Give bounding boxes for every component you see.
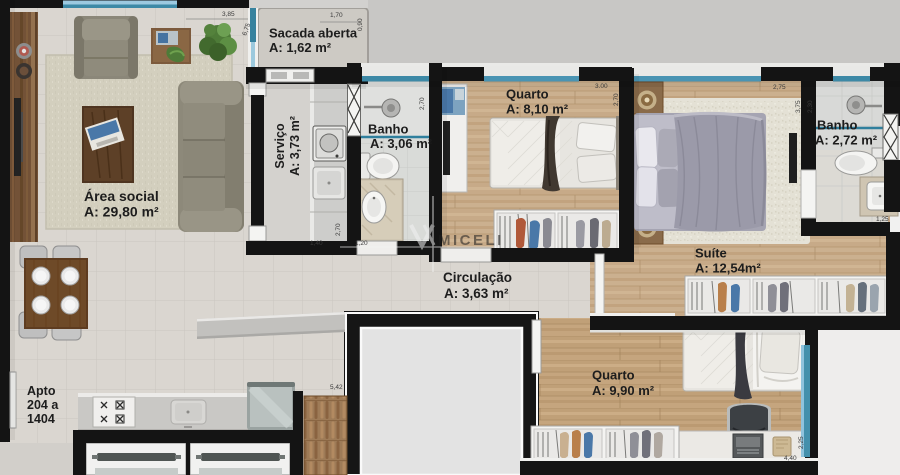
svg-text:A: 2,72 m²: A: 2,72 m² [815, 133, 878, 148]
svg-text:A: 12,54m²: A: 12,54m² [695, 261, 761, 276]
svg-text:A: 3,63 m²: A: 3,63 m² [444, 286, 509, 301]
svg-text:1,70: 1,70 [330, 12, 343, 19]
svg-text:Quarto: Quarto [506, 87, 549, 102]
svg-text:1,25: 1,25 [876, 216, 889, 223]
svg-text:3.00: 3.00 [595, 83, 608, 90]
svg-text:2,25: 2,25 [798, 436, 805, 449]
svg-text:Serviço: Serviço [273, 123, 287, 169]
svg-text:A: 1,62 m²: A: 1,62 m² [269, 40, 332, 55]
svg-text:1,20: 1,20 [355, 240, 368, 247]
svg-text:2,70: 2,70 [613, 93, 620, 106]
svg-text:Banho: Banho [817, 118, 858, 133]
svg-text:2,30: 2,30 [807, 100, 814, 113]
svg-text:2,70: 2,70 [419, 97, 426, 110]
svg-text:0,90: 0,90 [357, 18, 364, 31]
svg-text:A: 8,10 m²: A: 8,10 m² [506, 102, 569, 117]
svg-text:1,40: 1,40 [310, 240, 323, 247]
svg-text:MICELI: MICELI [438, 232, 504, 249]
svg-text:Suíte: Suíte [695, 246, 727, 261]
svg-text:2,75: 2,75 [773, 84, 786, 91]
svg-text:A: 9,90 m²: A: 9,90 m² [592, 383, 655, 398]
svg-text:Sacada aberta: Sacada aberta [269, 26, 358, 41]
svg-text:204 a: 204 a [27, 398, 59, 412]
svg-text:3,85: 3,85 [222, 11, 235, 18]
svg-text:3,75: 3,75 [795, 100, 802, 113]
svg-text:2,70: 2,70 [335, 223, 342, 236]
svg-text:A: 3,73 m²: A: 3,73 m² [288, 116, 302, 176]
svg-text:1404: 1404 [27, 412, 55, 426]
svg-text:Área social: Área social [84, 188, 159, 204]
svg-text:5,42: 5,42 [330, 384, 343, 391]
svg-text:A: 29,80 m²: A: 29,80 m² [84, 204, 159, 220]
svg-text:Quarto: Quarto [592, 368, 635, 383]
svg-text:Banho: Banho [368, 122, 409, 137]
svg-text:Apto: Apto [27, 384, 56, 398]
svg-text:A: 3,06 m²: A: 3,06 m² [370, 136, 433, 151]
svg-text:Circulação: Circulação [443, 270, 512, 285]
svg-text:4,40: 4,40 [784, 455, 797, 462]
